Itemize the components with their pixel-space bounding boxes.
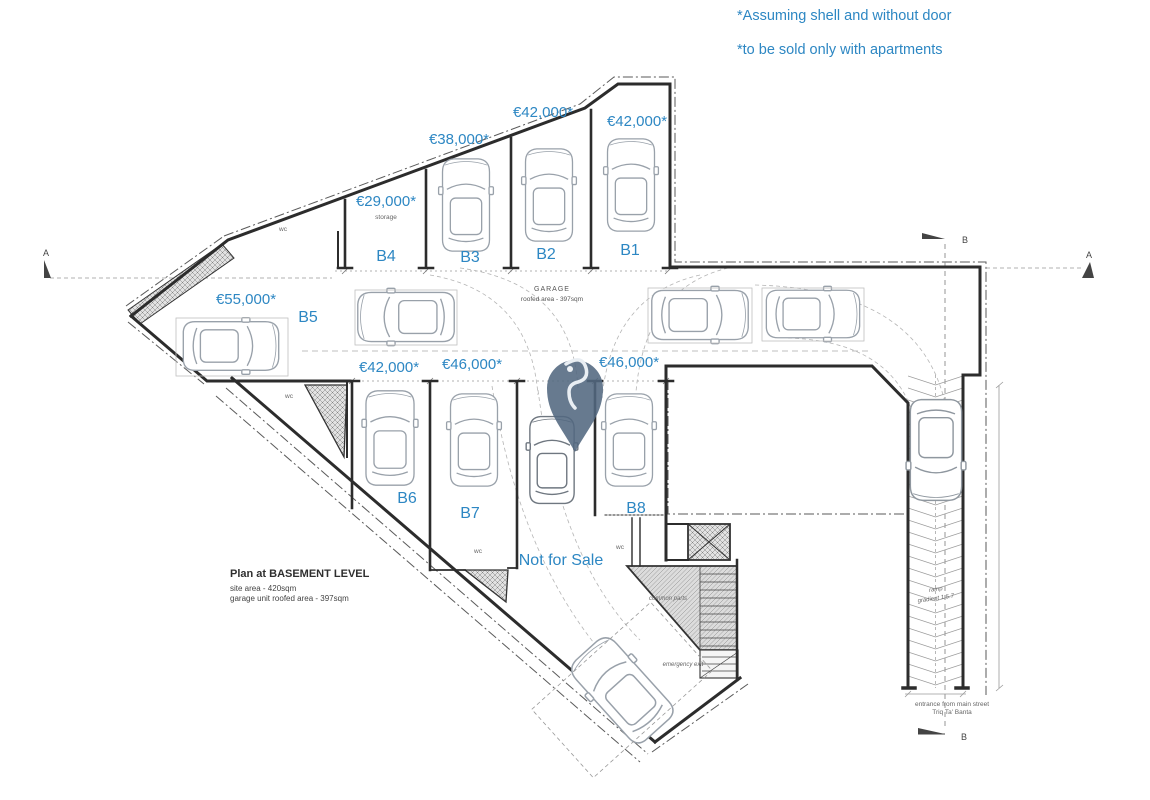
wc-label-b5: wc [284, 393, 294, 400]
car-aisle-3 [766, 286, 859, 341]
stall-label-b4: B4 [376, 248, 396, 265]
section-a-left: A [43, 248, 49, 258]
car-ramp [906, 400, 966, 501]
section-a-right: A [1086, 250, 1092, 260]
emergency-exit-label: emergency exit [663, 662, 704, 668]
common-parts-area [627, 566, 737, 650]
car-b1 [604, 139, 659, 231]
car-b5 [183, 318, 278, 375]
floor-plan-page: *Assuming shell and without door *to be … [0, 0, 1150, 800]
car-aisle-1 [358, 288, 454, 345]
car-b7 [447, 394, 502, 486]
common-parts-label: common parts [649, 596, 687, 602]
stall-label-b5: B5 [298, 309, 318, 326]
not-for-sale-label: Not for Sale [519, 552, 604, 569]
price-b1: €42,000* [607, 113, 667, 130]
plan-roofed-area: garage unit roofed area - 397sqm [230, 594, 349, 603]
storage-label: storage [375, 214, 397, 221]
price-b6: €42,000* [359, 359, 419, 376]
car-b8 [602, 394, 657, 486]
stall-label-b3: B3 [460, 249, 480, 266]
car-b2 [522, 149, 577, 241]
entrance-label-1: entrance from main street [915, 701, 989, 708]
car-b3 [439, 159, 494, 251]
plan-title: Plan at BASEMENT LEVEL [230, 568, 370, 580]
wc-label-storage: wc [278, 226, 288, 233]
stall-label-b2: B2 [536, 246, 556, 263]
stall-label-b8: B8 [626, 500, 646, 517]
wc-label-b8: wc [615, 544, 625, 551]
entrance-label-2: Triq Ta' Banta [932, 709, 972, 716]
car-b6 [362, 391, 418, 485]
stall-boxes [176, 288, 864, 778]
section-b-top: B [962, 235, 968, 245]
wc-label-b7: wc [473, 548, 483, 555]
note-line-1: *Assuming shell and without door [737, 8, 952, 24]
stall-label-b6: B6 [397, 490, 417, 507]
shaft-box [688, 524, 730, 560]
stall-label-b7: B7 [460, 505, 480, 522]
price-b4: €29,000* [356, 193, 416, 210]
car-aisle-2 [652, 286, 748, 343]
price-b5: €55,000* [216, 291, 276, 308]
price-b7: €46,000* [442, 356, 502, 373]
plan-site-area: site area - 420sqm [230, 584, 297, 593]
price-b8: €46,000* [599, 354, 659, 371]
garage-title: GARAGE [534, 286, 570, 293]
hatched-wall-band [128, 244, 234, 324]
floor-plan-drawing: *Assuming shell and without door *to be … [0, 0, 1150, 800]
price-b3: €38,000* [429, 131, 489, 148]
section-b-bottom: B [961, 732, 967, 742]
note-line-2: *to be sold only with apartments [737, 42, 943, 58]
price-b2: €42,000* [513, 104, 573, 121]
stall-label-b1: B1 [620, 242, 640, 259]
car-bottom-diagonal [563, 630, 681, 751]
garage-area: roofed area - 397sqm [521, 296, 583, 303]
